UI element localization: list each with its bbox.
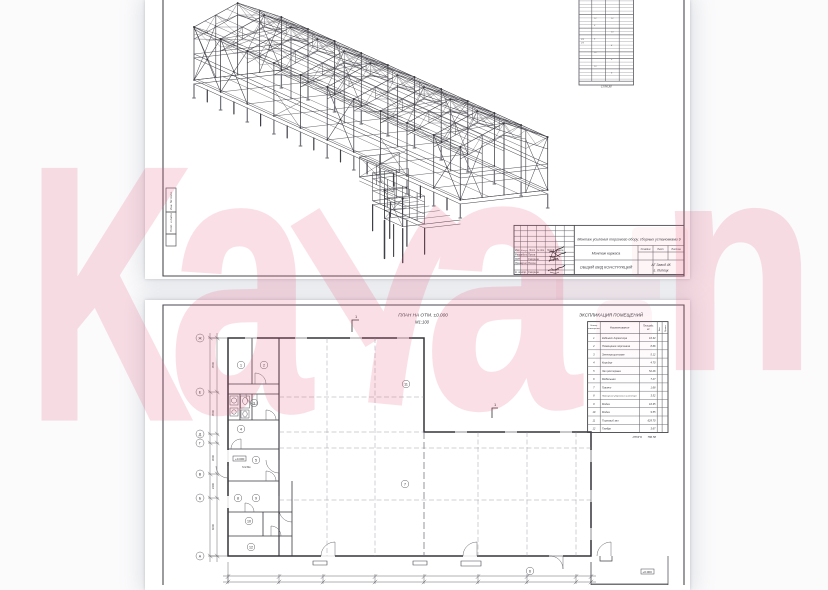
- svg-text:K: K: [28, 93, 192, 495]
- svg-text:a: a: [170, 76, 313, 489]
- svg-text:n: n: [660, 104, 815, 431]
- svg-text:a: a: [426, 74, 582, 484]
